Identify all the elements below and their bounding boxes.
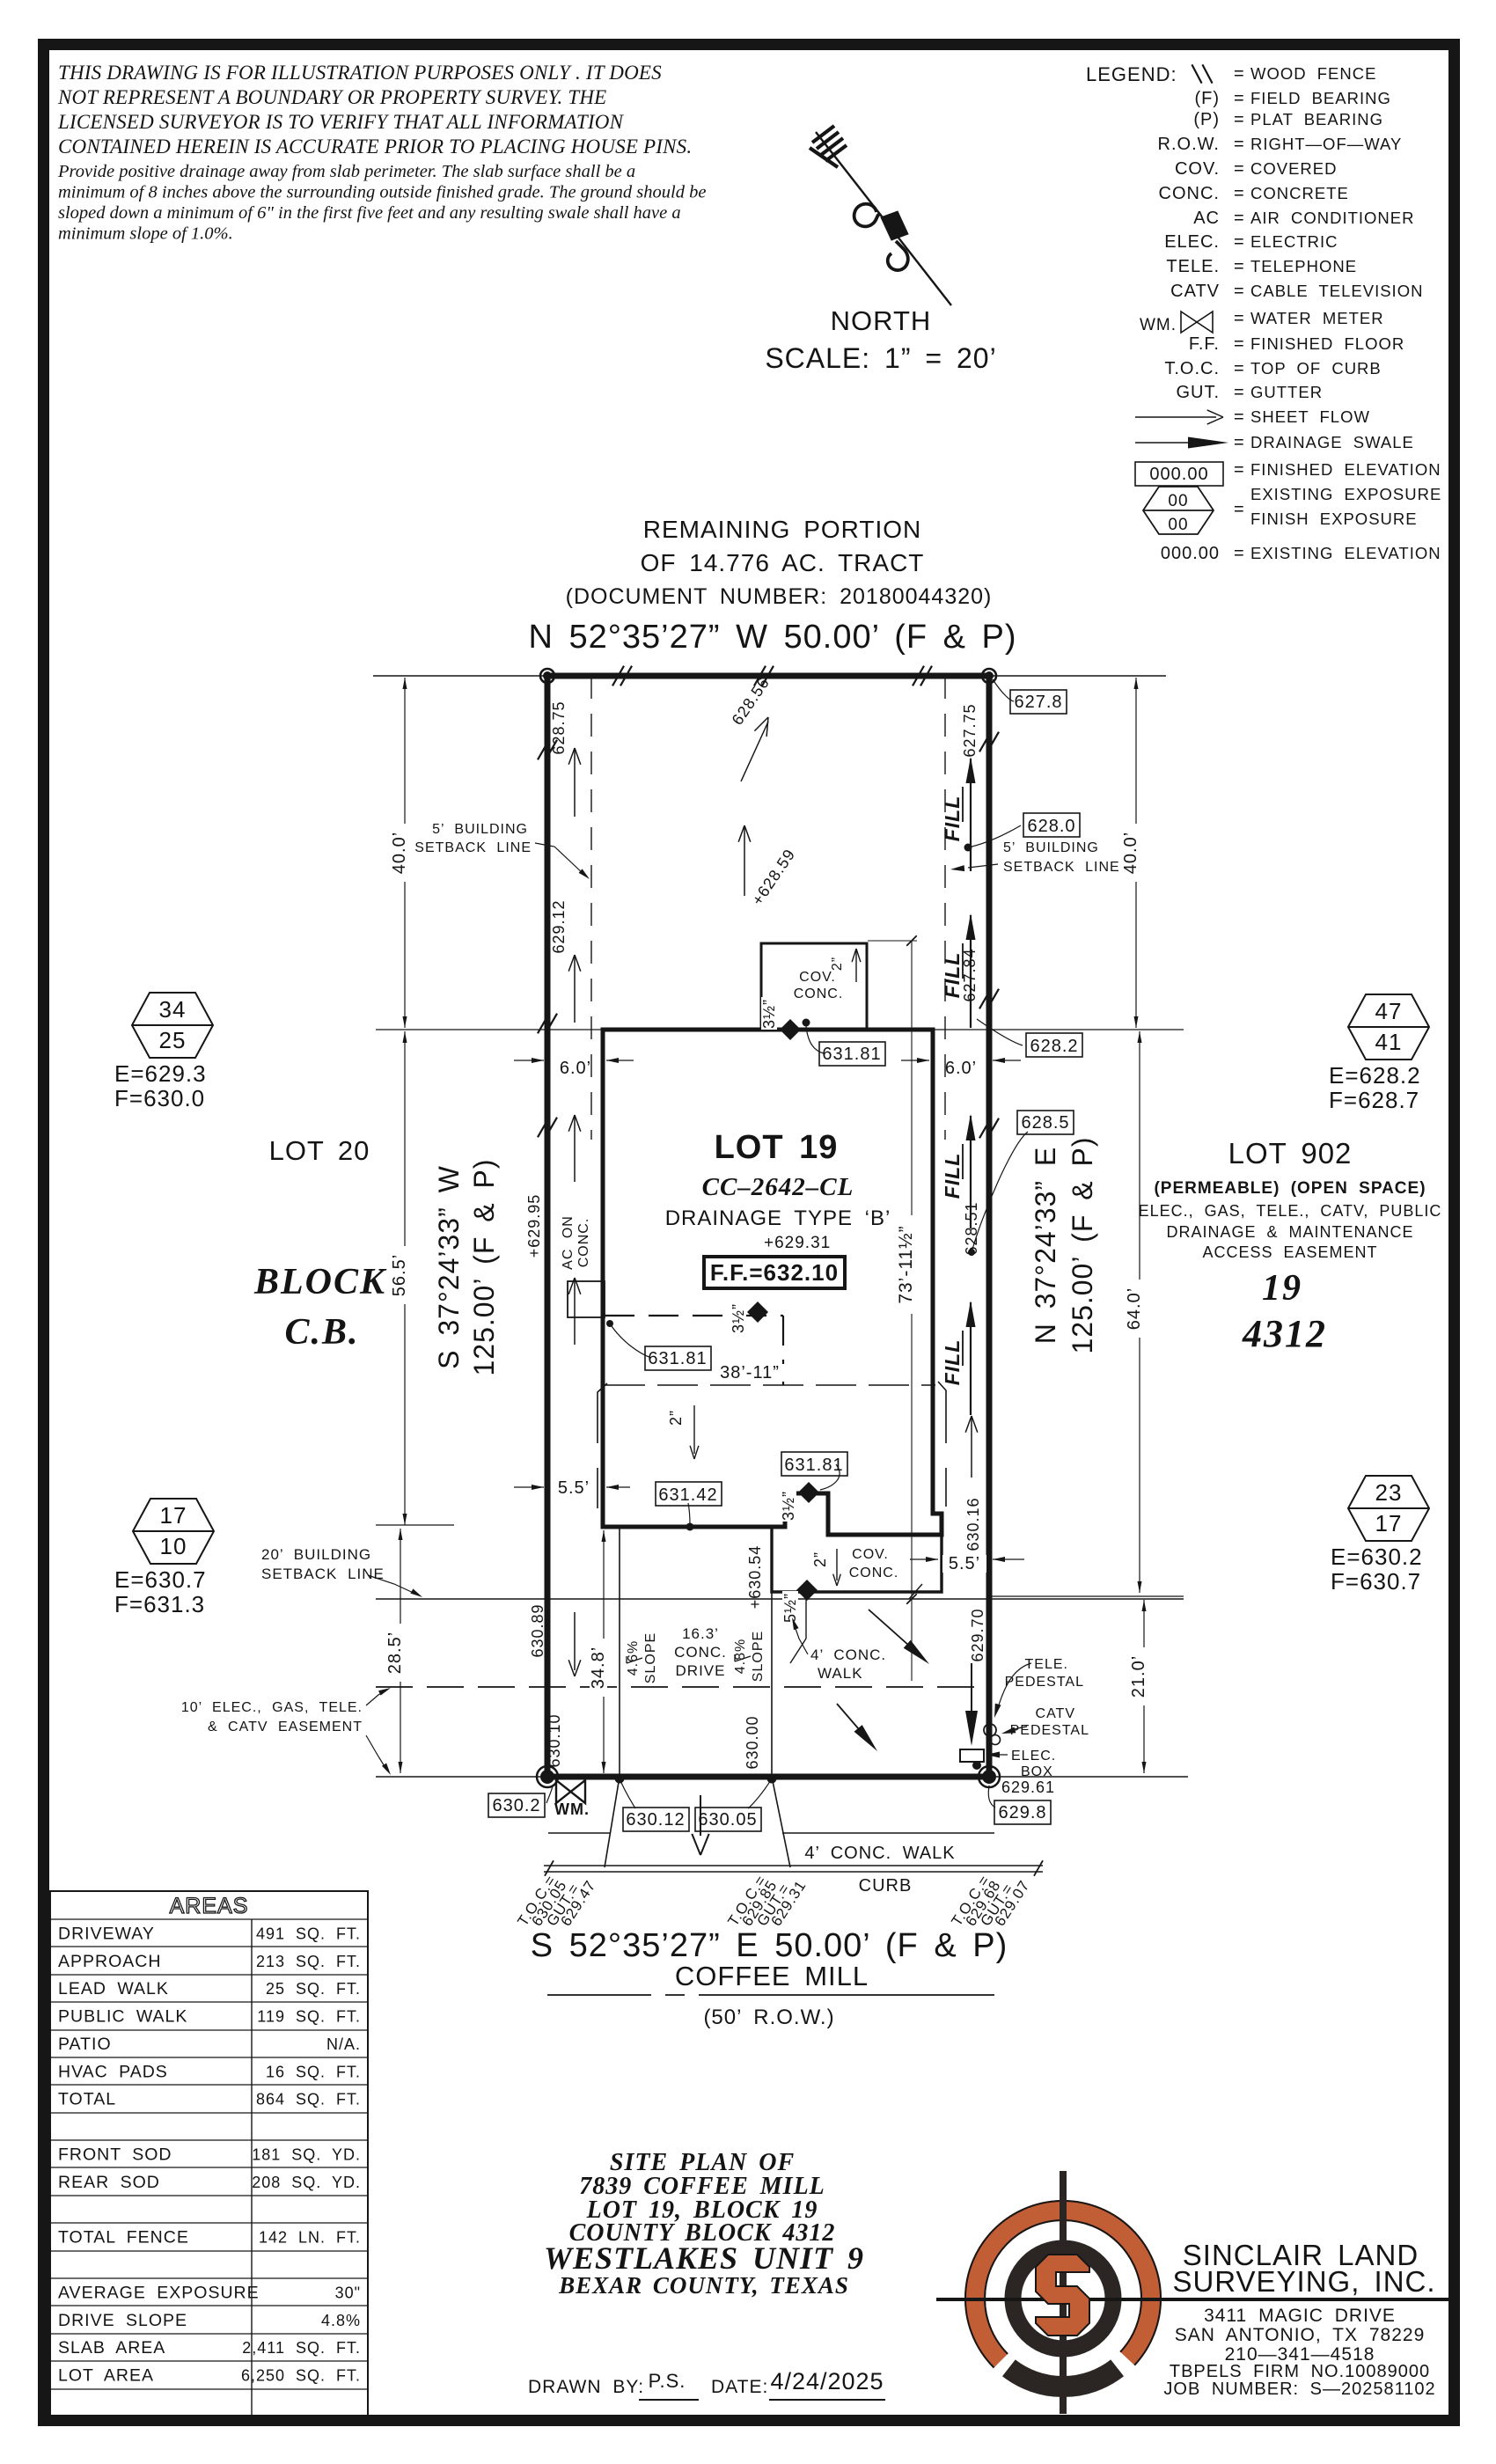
svg-text:ELECTRIC: ELECTRIC bbox=[1250, 232, 1338, 251]
svg-text:PUBLIC WALK: PUBLIC WALK bbox=[58, 2007, 187, 2027]
svg-text:THIS DRAWING IS FOR ILLUSTRATI: THIS DRAWING IS FOR ILLUSTRATION PURPOSE… bbox=[58, 62, 662, 84]
svg-text:5’ BUILDING: 5’ BUILDING bbox=[1003, 840, 1099, 855]
svg-text:DRAINAGE SWALE: DRAINAGE SWALE bbox=[1250, 433, 1414, 451]
svg-text:SCALE: 1” = 20’: SCALE: 1” = 20’ bbox=[765, 342, 996, 374]
svg-text:FILL: FILL bbox=[941, 1339, 964, 1386]
svg-text:N/A.: N/A. bbox=[326, 2035, 361, 2053]
svg-text:RIGHT—OF—WAY: RIGHT—OF—WAY bbox=[1250, 135, 1402, 153]
svg-text:FINISHED ELEVATION: FINISHED ELEVATION bbox=[1250, 460, 1441, 479]
svg-text:F=630.0: F=630.0 bbox=[114, 1085, 205, 1111]
svg-text:CONC.: CONC. bbox=[674, 1644, 727, 1661]
svg-text:491 SQ. FT.: 491 SQ. FT. bbox=[256, 1925, 361, 1942]
svg-text:=: = bbox=[1234, 282, 1245, 301]
svg-text:=: = bbox=[1234, 334, 1245, 354]
svg-text:COFFEE MILL: COFFEE MILL bbox=[675, 1961, 869, 1991]
svg-text:Provide positive drainage away: Provide positive drainage away from slab… bbox=[57, 162, 635, 181]
svg-text:47: 47 bbox=[1375, 998, 1403, 1024]
svg-text:REMAINING PORTION: REMAINING PORTION bbox=[643, 516, 922, 543]
svg-text:41: 41 bbox=[1375, 1029, 1403, 1055]
svg-text:2”: 2” bbox=[830, 957, 845, 971]
svg-text:(P): (P) bbox=[1193, 110, 1220, 129]
svg-text:19: 19 bbox=[1262, 1268, 1302, 1309]
svg-text:30": 30" bbox=[335, 2284, 361, 2301]
svg-text:627.8: 627.8 bbox=[1014, 693, 1062, 712]
svg-text:E=628.2: E=628.2 bbox=[1329, 1062, 1421, 1089]
svg-text:4’ CONC.: 4’ CONC. bbox=[810, 1646, 886, 1663]
svg-text:COVERED: COVERED bbox=[1250, 159, 1338, 178]
svg-text:DRAINAGE TYPE ‘B’: DRAINAGE TYPE ‘B’ bbox=[665, 1206, 891, 1230]
svg-text:5’ BUILDING: 5’ BUILDING bbox=[432, 822, 528, 837]
svg-text:6.0’: 6.0’ bbox=[560, 1059, 591, 1078]
svg-text:630.00: 630.00 bbox=[744, 1715, 761, 1769]
svg-text:LEGEND:: LEGEND: bbox=[1086, 63, 1177, 85]
svg-text:N 52°35’27” W 50.00’ (F & P): N 52°35’27” W 50.00’ (F & P) bbox=[528, 619, 1016, 656]
svg-text:EXISTING ELEVATION: EXISTING ELEVATION bbox=[1250, 544, 1441, 562]
svg-text:34.8’: 34.8’ bbox=[589, 1646, 608, 1689]
svg-text:R.O.W.: R.O.W. bbox=[1158, 135, 1220, 154]
svg-text:WM.: WM. bbox=[554, 1800, 590, 1818]
svg-text:38’-11”: 38’-11” bbox=[720, 1363, 780, 1382]
svg-text:N 37°24’33” E: N 37°24’33” E bbox=[1030, 1147, 1061, 1345]
svg-text:864 SQ. FT.: 864 SQ. FT. bbox=[256, 2091, 361, 2108]
svg-text:629.70: 629.70 bbox=[969, 1608, 986, 1661]
svg-text:GUT.: GUT. bbox=[1176, 383, 1220, 402]
svg-text:40.0’: 40.0’ bbox=[1121, 832, 1140, 874]
svg-text:631.81: 631.81 bbox=[648, 1349, 707, 1368]
svg-text:=: = bbox=[1234, 309, 1245, 328]
svg-text:=: = bbox=[1234, 407, 1245, 427]
svg-text:630.05: 630.05 bbox=[698, 1810, 757, 1830]
svg-text:34: 34 bbox=[159, 996, 187, 1023]
svg-text:EXISTING EXPOSURE: EXISTING EXPOSURE bbox=[1250, 485, 1441, 503]
svg-text:25 SQ. FT.: 25 SQ. FT. bbox=[266, 1980, 361, 1998]
svg-text:4.8%: 4.8% bbox=[321, 2312, 361, 2329]
svg-text:PEDESTAL: PEDESTAL bbox=[1010, 1723, 1089, 1738]
svg-text:56.5’: 56.5’ bbox=[390, 1254, 409, 1296]
svg-text:=: = bbox=[1234, 159, 1245, 179]
svg-text:CONC.: CONC. bbox=[849, 1566, 899, 1580]
svg-text:TELEPHONE: TELEPHONE bbox=[1250, 257, 1357, 275]
svg-text:=: = bbox=[1234, 433, 1245, 452]
svg-text:E=630.2: E=630.2 bbox=[1331, 1544, 1423, 1570]
svg-text:PLAT BEARING: PLAT BEARING bbox=[1250, 110, 1383, 128]
svg-text:minimum slope of 1.0%.: minimum slope of 1.0%. bbox=[58, 224, 233, 244]
svg-text:TOP OF CURB: TOP OF CURB bbox=[1250, 359, 1382, 378]
svg-text:=: = bbox=[1234, 110, 1245, 129]
svg-text:WM.: WM. bbox=[1140, 316, 1177, 334]
svg-text:629.8: 629.8 bbox=[998, 1803, 1046, 1822]
svg-text:FILL: FILL bbox=[941, 1153, 964, 1199]
svg-text:CC–2642–CL: CC–2642–CL bbox=[702, 1173, 854, 1201]
svg-text:sloped down a minimum of 6" in: sloped down a minimum of 6" in the first… bbox=[58, 203, 681, 223]
svg-text:10’ ELEC., GAS, TELE.: 10’ ELEC., GAS, TELE. bbox=[181, 1700, 363, 1715]
svg-text:F.F.: F.F. bbox=[1189, 334, 1220, 354]
svg-text:SETBACK LINE: SETBACK LINE bbox=[414, 840, 532, 855]
svg-text:LOT AREA: LOT AREA bbox=[58, 2366, 154, 2386]
svg-text:16 SQ. FT.: 16 SQ. FT. bbox=[266, 2063, 361, 2080]
svg-text:5½”: 5½” bbox=[781, 1593, 799, 1623]
svg-text:20’ BUILDING: 20’ BUILDING bbox=[261, 1546, 371, 1563]
svg-text:00: 00 bbox=[1168, 492, 1188, 510]
svg-text:213 SQ. FT.: 213 SQ. FT. bbox=[256, 1953, 361, 1970]
svg-text:CABLE TELEVISION: CABLE TELEVISION bbox=[1250, 282, 1423, 300]
svg-text:PATIO: PATIO bbox=[58, 2035, 112, 2054]
svg-text:ELEC.: ELEC. bbox=[1164, 232, 1220, 252]
svg-text:LEAD WALK: LEAD WALK bbox=[58, 1979, 169, 1998]
svg-text:627.75: 627.75 bbox=[961, 703, 979, 757]
svg-text:5.5’: 5.5’ bbox=[558, 1478, 590, 1498]
svg-text:628.51: 628.51 bbox=[963, 1201, 980, 1255]
svg-text:28.5’: 28.5’ bbox=[385, 1632, 405, 1674]
svg-text:630.10: 630.10 bbox=[546, 1713, 563, 1767]
svg-text:SHEET FLOW: SHEET FLOW bbox=[1250, 407, 1370, 426]
svg-text:FRONT SOD: FRONT SOD bbox=[58, 2145, 172, 2165]
svg-text:AC: AC bbox=[1193, 209, 1220, 228]
svg-text:=: = bbox=[1234, 232, 1245, 252]
svg-text:628.2: 628.2 bbox=[1030, 1037, 1078, 1056]
svg-text:23: 23 bbox=[1375, 1479, 1403, 1506]
svg-text:WESTLAKES UNIT 9: WESTLAKES UNIT 9 bbox=[544, 2240, 864, 2276]
svg-text:LICENSED SURVEYOR IS TO VERIFY: LICENSED SURVEYOR IS TO VERIFY THAT ALL … bbox=[57, 111, 625, 133]
svg-text:ELEC.: ELEC. bbox=[1011, 1749, 1056, 1764]
svg-text:627.84: 627.84 bbox=[961, 948, 979, 1001]
svg-text:125.00’ (F & P): 125.00’ (F & P) bbox=[1067, 1136, 1098, 1353]
svg-text:AVERAGE EXPOSURE: AVERAGE EXPOSURE bbox=[58, 2283, 260, 2302]
svg-text:+629.31: +629.31 bbox=[764, 1234, 831, 1252]
svg-text:00: 00 bbox=[1168, 516, 1188, 534]
svg-text:3411 MAGIC DRIVE: 3411 MAGIC DRIVE bbox=[1204, 2306, 1396, 2326]
svg-text:GUTTER: GUTTER bbox=[1250, 383, 1323, 401]
svg-text:ACCESS EASEMENT: ACCESS EASEMENT bbox=[1202, 1243, 1377, 1261]
svg-text:E=629.3: E=629.3 bbox=[114, 1060, 207, 1087]
svg-text:=: = bbox=[1234, 383, 1245, 402]
svg-text:3½”: 3½” bbox=[780, 1491, 797, 1521]
svg-text:DRAINAGE & MAINTENANCE: DRAINAGE & MAINTENANCE bbox=[1166, 1223, 1413, 1241]
svg-text:CATV: CATV bbox=[1036, 1706, 1075, 1721]
svg-text:630.2: 630.2 bbox=[492, 1796, 540, 1815]
svg-text:000.00: 000.00 bbox=[1161, 544, 1220, 563]
svg-text:FILL: FILL bbox=[941, 796, 964, 842]
svg-text:PEDESTAL: PEDESTAL bbox=[1005, 1675, 1084, 1690]
svg-text:WATER METER: WATER METER bbox=[1250, 309, 1384, 327]
svg-text:73’-11½”: 73’-11½” bbox=[896, 1225, 916, 1303]
svg-text:E=630.7: E=630.7 bbox=[114, 1566, 207, 1593]
svg-text:628.0: 628.0 bbox=[1027, 817, 1075, 836]
svg-text:628.5: 628.5 bbox=[1021, 1113, 1069, 1133]
svg-text:SAN ANTONIO, TX 78229: SAN ANTONIO, TX 78229 bbox=[1175, 2325, 1426, 2345]
svg-text:COV.: COV. bbox=[852, 1547, 889, 1562]
svg-text:628.75: 628.75 bbox=[550, 700, 568, 754]
svg-text:F=630.7: F=630.7 bbox=[1331, 1568, 1421, 1595]
svg-text:17: 17 bbox=[1375, 1510, 1403, 1536]
svg-text:SETBACK LINE: SETBACK LINE bbox=[261, 1566, 385, 1582]
svg-text:=: = bbox=[1234, 544, 1245, 563]
svg-text:DRAWN BY:: DRAWN BY: bbox=[528, 2377, 644, 2397]
svg-text:F=628.7: F=628.7 bbox=[1329, 1087, 1419, 1113]
svg-text:6,250 SQ. FT.: 6,250 SQ. FT. bbox=[241, 2367, 361, 2385]
svg-text:CONCRETE: CONCRETE bbox=[1250, 184, 1349, 202]
svg-text:40.0’: 40.0’ bbox=[390, 832, 409, 874]
svg-text:TOTAL: TOTAL bbox=[58, 2090, 116, 2109]
svg-text:NORTH: NORTH bbox=[831, 305, 932, 336]
svg-text:21.0’: 21.0’ bbox=[1129, 1655, 1148, 1698]
svg-text:=: = bbox=[1234, 209, 1245, 228]
svg-text:3½”: 3½” bbox=[760, 999, 778, 1029]
svg-text:631.81: 631.81 bbox=[822, 1045, 881, 1064]
svg-text:629.12: 629.12 bbox=[550, 899, 568, 953]
svg-text:TELE.: TELE. bbox=[1025, 1657, 1068, 1672]
svg-text:SURVEYING, INC.: SURVEYING, INC. bbox=[1172, 2265, 1435, 2298]
svg-text:CONTAINED HEREIN IS ACCURATE P: CONTAINED HEREIN IS ACCURATE PRIOR TO PL… bbox=[58, 136, 692, 158]
svg-text:5.5’: 5.5’ bbox=[949, 1554, 980, 1573]
svg-text:(PERMEABLE) (OPEN SPACE): (PERMEABLE) (OPEN SPACE) bbox=[1154, 1179, 1426, 1198]
svg-text:AC ON: AC ON bbox=[561, 1215, 576, 1270]
svg-text:629.61: 629.61 bbox=[1001, 1778, 1055, 1796]
svg-text:BLOCK: BLOCK bbox=[253, 1262, 387, 1302]
svg-text:631.42: 631.42 bbox=[658, 1485, 717, 1505]
svg-text:CONC.: CONC. bbox=[576, 1218, 591, 1268]
svg-text:DRIVE: DRIVE bbox=[676, 1662, 726, 1679]
svg-text:CATV: CATV bbox=[1170, 282, 1220, 301]
svg-text:FIELD BEARING: FIELD BEARING bbox=[1250, 89, 1391, 107]
svg-text:DATE:: DATE: bbox=[711, 2377, 768, 2397]
svg-text:LOT 20: LOT 20 bbox=[269, 1135, 370, 1166]
svg-text:JOB NUMBER: S—202581102: JOB NUMBER: S—202581102 bbox=[1163, 2380, 1435, 2399]
svg-text:630.16: 630.16 bbox=[964, 1497, 982, 1551]
svg-text:BOX: BOX bbox=[1021, 1764, 1053, 1779]
svg-text:=: = bbox=[1234, 135, 1245, 154]
svg-text:S 37°24’33” W: S 37°24’33” W bbox=[433, 1165, 465, 1369]
svg-text:16.3’: 16.3’ bbox=[682, 1625, 719, 1642]
svg-text:208 SQ. YD.: 208 SQ. YD. bbox=[252, 2174, 361, 2191]
svg-text:ELEC., GAS, TELE., CATV, PUBLI: ELEC., GAS, TELE., CATV, PUBLIC bbox=[1139, 1202, 1442, 1220]
svg-text:17: 17 bbox=[160, 1502, 187, 1529]
svg-text:2”: 2” bbox=[667, 1410, 685, 1426]
svg-text:AIR CONDITIONER: AIR CONDITIONER bbox=[1250, 209, 1414, 227]
svg-text:6.0’: 6.0’ bbox=[945, 1059, 977, 1078]
svg-text:S 52°35’27” E 50.00’ (F & P): S 52°35’27” E 50.00’ (F & P) bbox=[531, 1927, 1008, 1964]
svg-text:AREAS: AREAS bbox=[170, 1894, 249, 1918]
svg-text:TOTAL FENCE: TOTAL FENCE bbox=[58, 2228, 189, 2248]
svg-text:CURB: CURB bbox=[859, 1876, 913, 1896]
svg-text:FINISH EXPOSURE: FINISH EXPOSURE bbox=[1250, 510, 1418, 528]
svg-text:T.O.C.: T.O.C. bbox=[1164, 359, 1220, 378]
svg-text:NOT REPRESENT A BOUNDARY OR PR: NOT REPRESENT A BOUNDARY OR PROPERTY SUR… bbox=[57, 86, 606, 108]
svg-text:DRIVEWAY: DRIVEWAY bbox=[58, 1924, 155, 1943]
svg-text:HVAC PADS: HVAC PADS bbox=[58, 2062, 168, 2081]
svg-text:119 SQ. FT.: 119 SQ. FT. bbox=[257, 2008, 361, 2026]
svg-text:WOOD FENCE: WOOD FENCE bbox=[1250, 64, 1376, 83]
svg-text:(DOCUMENT NUMBER: 20180044320: (DOCUMENT NUMBER: 20180044320) bbox=[566, 584, 993, 609]
svg-text:FINISHED FLOOR: FINISHED FLOOR bbox=[1250, 334, 1404, 353]
svg-text:64.0’: 64.0’ bbox=[1125, 1287, 1144, 1330]
svg-text:& CATV EASEMENT: & CATV EASEMENT bbox=[208, 1720, 363, 1734]
svg-text:LOT 902: LOT 902 bbox=[1228, 1137, 1353, 1170]
svg-text:REAR SOD: REAR SOD bbox=[58, 2173, 160, 2192]
svg-text:10: 10 bbox=[160, 1533, 187, 1559]
svg-text:minimum of 8 inches above the: minimum of 8 inches above the surroundin… bbox=[58, 183, 706, 202]
svg-text:4’ CONC. WALK: 4’ CONC. WALK bbox=[804, 1844, 955, 1863]
svg-text:DRIVE SLOPE: DRIVE SLOPE bbox=[58, 2311, 187, 2330]
svg-text:BEXAR COUNTY, TEXAS: BEXAR COUNTY, TEXAS bbox=[558, 2272, 849, 2299]
svg-text:2,411 SQ. FT.: 2,411 SQ. FT. bbox=[242, 2339, 361, 2357]
svg-text:(F): (F) bbox=[1194, 89, 1220, 108]
svg-text:181 SQ. YD.: 181 SQ. YD. bbox=[252, 2146, 361, 2164]
svg-text:=: = bbox=[1234, 89, 1245, 108]
svg-text:C.B.: C.B. bbox=[284, 1312, 359, 1353]
svg-text:4/24/2025: 4/24/2025 bbox=[770, 2368, 884, 2394]
svg-text:SLOPE: SLOPE bbox=[643, 1632, 658, 1683]
svg-text:=: = bbox=[1234, 500, 1245, 519]
svg-text:CONC.: CONC. bbox=[1159, 184, 1220, 203]
svg-text:000.00: 000.00 bbox=[1149, 465, 1208, 484]
svg-text:=: = bbox=[1234, 359, 1245, 378]
svg-text:4312: 4312 bbox=[1242, 1312, 1327, 1355]
svg-text:SLAB AREA: SLAB AREA bbox=[58, 2338, 165, 2358]
svg-text:COV.: COV. bbox=[799, 970, 836, 985]
svg-text:WALK: WALK bbox=[818, 1665, 863, 1682]
svg-text:F=631.3: F=631.3 bbox=[114, 1591, 205, 1617]
svg-text:+629.95: +629.95 bbox=[525, 1194, 543, 1258]
svg-text:LOT 19: LOT 19 bbox=[715, 1129, 839, 1166]
svg-text:OF 14.776 AC. TRACT: OF 14.776 AC. TRACT bbox=[641, 549, 925, 576]
svg-text:(50’ R.O.W.): (50’ R.O.W.) bbox=[703, 2006, 834, 2029]
svg-text:SLOPE: SLOPE bbox=[751, 1631, 766, 1682]
svg-text:2”: 2” bbox=[811, 1551, 829, 1567]
svg-text:4.6%: 4.6% bbox=[626, 1640, 641, 1676]
svg-text:SETBACK LINE: SETBACK LINE bbox=[1003, 860, 1120, 875]
svg-text:630.89: 630.89 bbox=[529, 1603, 546, 1657]
svg-text:F.F.=632.10: F.F.=632.10 bbox=[710, 1259, 839, 1286]
svg-text:=: = bbox=[1234, 257, 1245, 276]
svg-text:631.81: 631.81 bbox=[784, 1456, 843, 1475]
svg-text:APPROACH: APPROACH bbox=[58, 1952, 161, 1971]
svg-text:COV.: COV. bbox=[1175, 159, 1220, 179]
svg-text:+630.54: +630.54 bbox=[746, 1545, 764, 1610]
svg-text:=: = bbox=[1234, 64, 1245, 84]
svg-text:3½”: 3½” bbox=[730, 1303, 747, 1333]
svg-text:P.S.: P.S. bbox=[649, 2370, 686, 2392]
svg-text:125.00’ (F & P): 125.00’ (F & P) bbox=[468, 1158, 500, 1375]
svg-text:25: 25 bbox=[159, 1027, 187, 1053]
svg-text:CONC.: CONC. bbox=[794, 986, 844, 1001]
svg-text:=: = bbox=[1234, 460, 1245, 480]
svg-text:630.12: 630.12 bbox=[626, 1810, 685, 1830]
svg-text:TELE.: TELE. bbox=[1166, 257, 1220, 276]
svg-text:142 LN. FT.: 142 LN. FT. bbox=[259, 2229, 361, 2247]
svg-text:TBPELS FIRM NO.10089000: TBPELS FIRM NO.10089000 bbox=[1170, 2362, 1430, 2381]
svg-text:=: = bbox=[1234, 184, 1245, 203]
